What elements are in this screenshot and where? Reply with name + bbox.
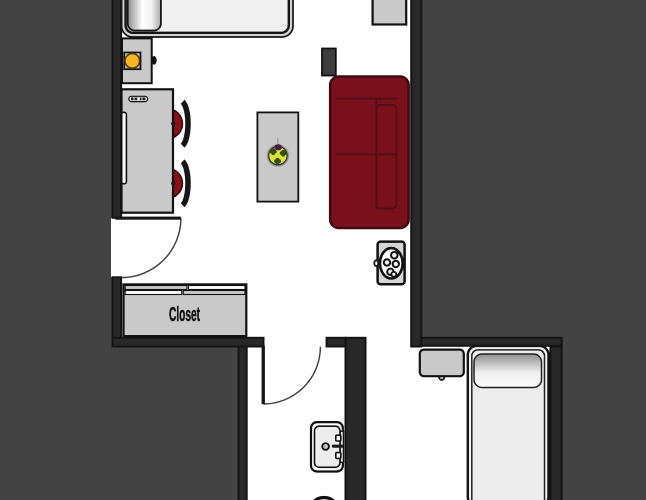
- svg-text:Closet: Closet: [169, 303, 200, 326]
